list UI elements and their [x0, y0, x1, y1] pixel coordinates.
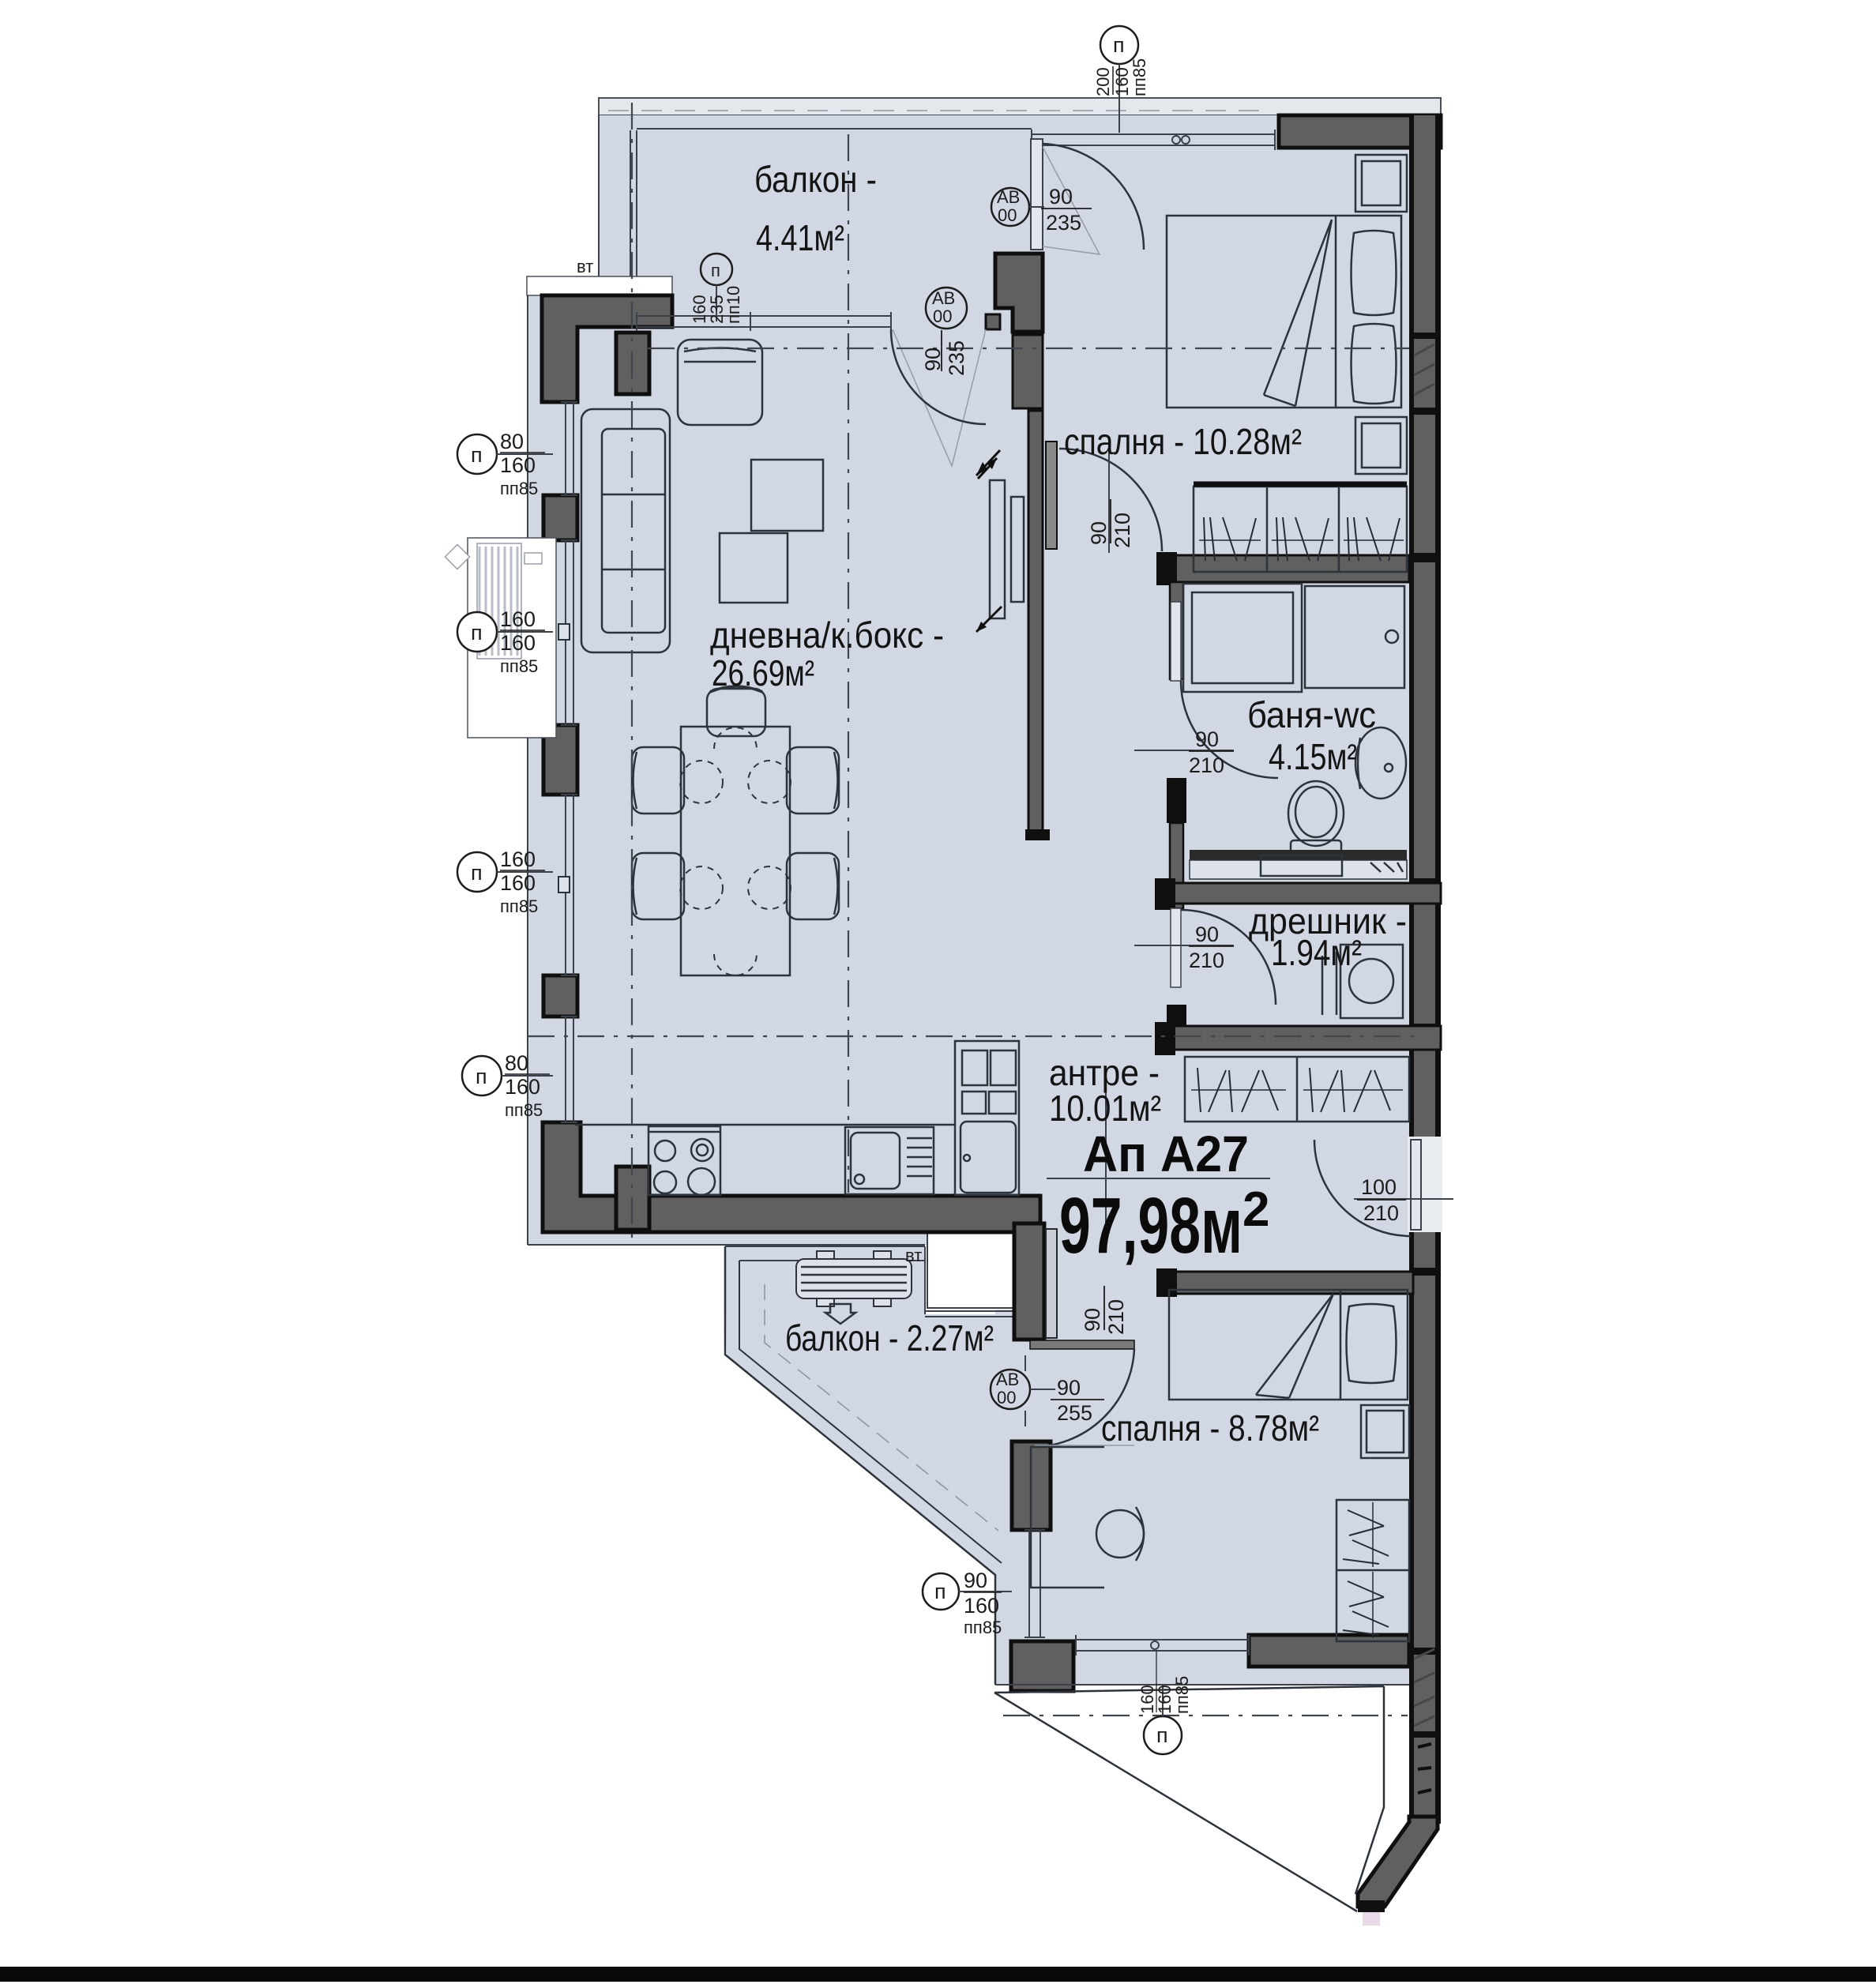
svg-text:90: 90	[1087, 521, 1111, 545]
svg-text:АВ: АВ	[996, 1370, 1019, 1389]
svg-text:пп10: пп10	[724, 286, 743, 324]
svg-text:100: 100	[1361, 1175, 1397, 1199]
svg-text:вт: вт	[905, 1246, 922, 1265]
svg-text:10.01м²: 10.01м²	[1049, 1088, 1161, 1129]
svg-text:80: 80	[505, 1051, 528, 1075]
svg-text:баня-wc: баня-wc	[1247, 694, 1376, 735]
svg-text:160: 160	[500, 871, 536, 895]
svg-text:90: 90	[1049, 185, 1073, 209]
svg-text:160: 160	[964, 1594, 999, 1618]
svg-text:п: п	[1113, 33, 1125, 57]
svg-text:п: п	[934, 1580, 946, 1603]
svg-text:200: 200	[1093, 67, 1113, 96]
svg-text:90: 90	[1195, 727, 1219, 751]
svg-text:210: 210	[1111, 513, 1134, 548]
svg-text:160: 160	[500, 847, 536, 871]
svg-text:255: 255	[1057, 1401, 1092, 1425]
svg-text:спалня - 8.78м²: спалня - 8.78м²	[1101, 1407, 1319, 1449]
svg-text:балкон -: балкон -	[754, 159, 877, 200]
svg-text:пп85: пп85	[500, 479, 538, 498]
svg-text:вт: вт	[577, 257, 593, 276]
svg-text:90: 90	[1057, 1376, 1081, 1400]
svg-text:пп85: пп85	[964, 1618, 1002, 1637]
svg-text:пп85: пп85	[1172, 1676, 1192, 1714]
svg-text:пп85: пп85	[1130, 58, 1149, 96]
svg-text:п: п	[476, 1065, 487, 1088]
svg-text:пп85: пп85	[500, 896, 538, 916]
svg-text:балкон - 2.27м²: балкон - 2.27м²	[785, 1317, 994, 1359]
svg-text:00: 00	[998, 205, 1017, 225]
svg-text:АВ: АВ	[997, 187, 1020, 207]
svg-text:210: 210	[1363, 1201, 1399, 1225]
svg-text:п: п	[471, 861, 483, 885]
svg-text:210: 210	[1104, 1299, 1128, 1335]
svg-text:90: 90	[964, 1569, 987, 1592]
svg-text:п: п	[471, 443, 483, 467]
svg-text:235: 235	[1046, 211, 1081, 235]
svg-text:4.41м²: 4.41м²	[756, 217, 844, 258]
svg-text:4.15м²: 4.15м²	[1269, 736, 1357, 777]
svg-text:пп85: пп85	[500, 656, 538, 676]
svg-text:235: 235	[945, 340, 968, 376]
svg-text:80: 80	[500, 430, 524, 453]
svg-text:00: 00	[933, 306, 952, 326]
svg-text:п: п	[711, 261, 720, 280]
svg-text:160: 160	[500, 631, 536, 655]
svg-text:26.69м²: 26.69м²	[712, 652, 814, 693]
svg-text:160: 160	[500, 607, 536, 631]
svg-text:00: 00	[997, 1388, 1016, 1407]
svg-text:90: 90	[1081, 1308, 1104, 1332]
svg-text:п: п	[1156, 1723, 1168, 1747]
svg-text:210: 210	[1189, 753, 1224, 777]
svg-text:п: п	[471, 621, 483, 645]
svg-text:спалня - 10.28м²: спалня - 10.28м²	[1064, 421, 1302, 462]
svg-text:Ап А27: Ап А27	[1083, 1126, 1249, 1182]
svg-text:90: 90	[1195, 923, 1219, 946]
svg-text:1.94м²: 1.94м²	[1271, 932, 1362, 973]
svg-text:пп85: пп85	[505, 1100, 543, 1120]
svg-text:160: 160	[505, 1075, 540, 1099]
svg-text:АВ: АВ	[932, 288, 955, 308]
svg-text:дневна/к.бокс -: дневна/к.бокс -	[710, 614, 944, 656]
svg-text:210: 210	[1189, 949, 1224, 972]
svg-text:97,98м2: 97,98м2	[1059, 1182, 1269, 1270]
svg-text:160: 160	[500, 453, 536, 477]
